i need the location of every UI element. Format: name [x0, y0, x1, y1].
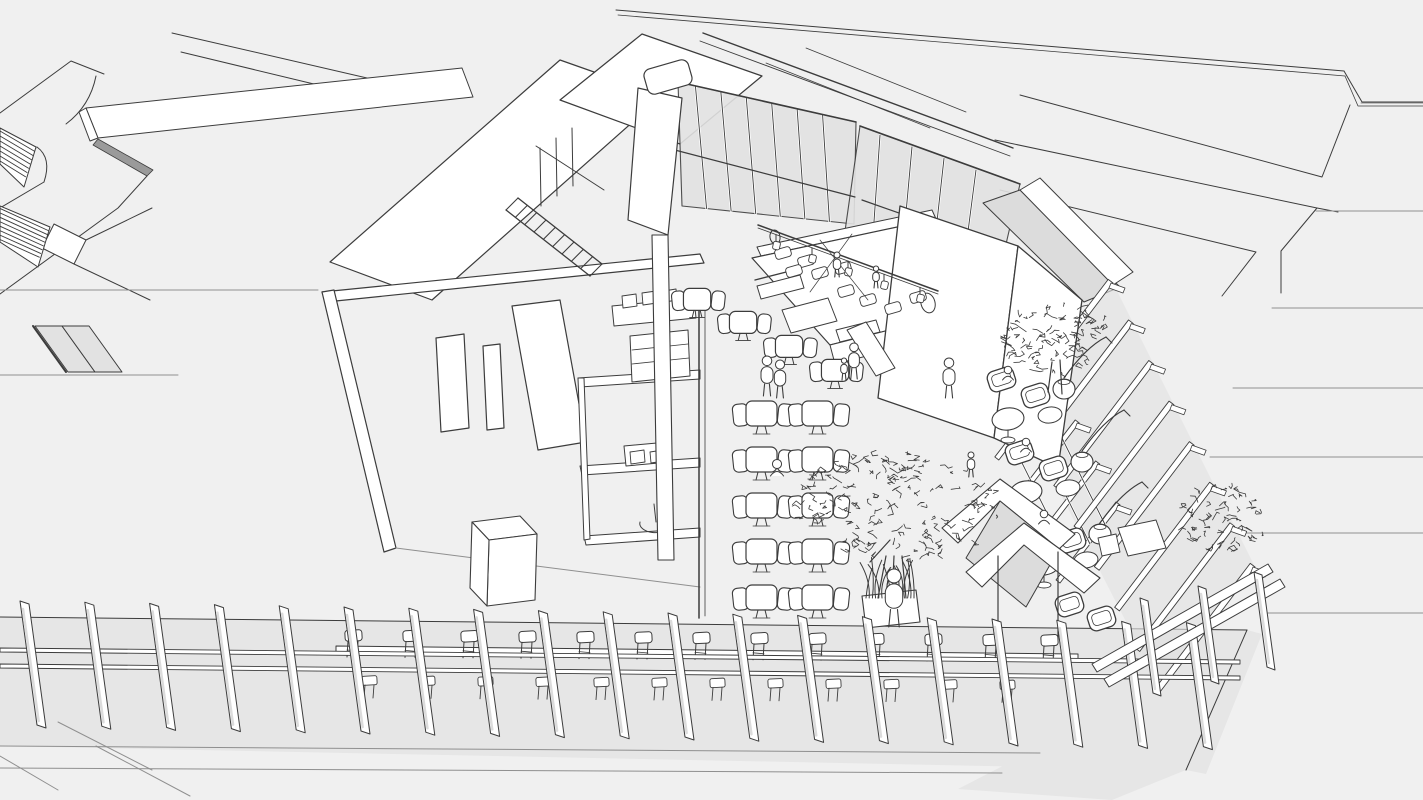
dining-table — [802, 539, 833, 564]
dining-table — [802, 585, 833, 610]
person-torso — [841, 364, 848, 373]
person-torso — [967, 459, 975, 470]
person-leg — [845, 373, 846, 380]
person-leg — [839, 270, 840, 278]
rendering-canvas — [0, 0, 1423, 800]
chair-back — [826, 679, 841, 689]
pendant-lamp-sphere — [1053, 379, 1075, 399]
person-torso — [849, 353, 860, 368]
chair-back — [768, 678, 783, 688]
freezer-front — [487, 534, 537, 606]
person-head — [968, 452, 974, 458]
person-torso — [873, 272, 880, 281]
stool-seat — [519, 631, 537, 643]
person-leg — [835, 270, 836, 278]
dining-table — [746, 493, 777, 518]
person-head — [841, 358, 846, 363]
dining-table — [683, 288, 710, 310]
dining-table — [802, 447, 833, 472]
stool-seat — [577, 631, 595, 643]
dining-table — [775, 335, 802, 357]
dining-chair — [757, 313, 772, 334]
seated-person-head — [1004, 366, 1012, 374]
person-leg — [877, 281, 878, 288]
stool-seat — [635, 632, 653, 644]
stool-seat — [461, 630, 479, 642]
chair-back — [594, 677, 609, 687]
spotlight-fixture — [916, 294, 925, 303]
dining-chair — [833, 541, 850, 564]
seated-person-head — [1040, 510, 1048, 518]
chair-back — [710, 678, 725, 688]
seated-person-head — [772, 459, 781, 468]
stool-seat — [1041, 634, 1059, 646]
monolith-front — [878, 206, 1018, 438]
person-torso — [761, 367, 773, 384]
dining-chair — [833, 495, 850, 518]
pendant-lamp-sphere — [1071, 452, 1093, 472]
dining-table — [746, 447, 777, 472]
person-head — [850, 343, 859, 352]
table-base — [1001, 437, 1015, 443]
person-head — [762, 356, 772, 366]
dining-table — [729, 311, 756, 333]
spotlight-fixture — [772, 241, 781, 250]
chair-back — [652, 678, 667, 688]
person-head — [944, 358, 954, 368]
dining-table — [746, 585, 777, 610]
wall-int-2 — [483, 344, 504, 430]
stool-seat — [693, 632, 711, 644]
stool-seat — [751, 632, 769, 644]
person-torso — [943, 369, 955, 386]
chair-back — [362, 676, 377, 686]
dining-chair — [711, 290, 726, 311]
dining-chair — [833, 587, 850, 610]
dining-table — [746, 539, 777, 564]
person-torso — [885, 584, 902, 608]
wall-int-1 — [436, 334, 469, 432]
seated-person-head — [1022, 438, 1030, 446]
person-torso — [833, 259, 841, 270]
person-leg — [969, 470, 970, 478]
architectural-rendering — [0, 0, 1423, 800]
dining-chair — [833, 449, 850, 472]
dining-chair — [803, 337, 818, 358]
person-leg — [874, 281, 875, 288]
person-leg — [842, 373, 843, 380]
person-leg — [973, 470, 974, 478]
person-head — [775, 360, 784, 369]
person-head — [834, 252, 840, 258]
stool-seat — [809, 633, 827, 645]
spotlight-fixture — [808, 254, 817, 263]
office-chair-1 — [630, 450, 645, 464]
person-head — [887, 569, 901, 583]
person-head — [873, 266, 878, 271]
chair-back — [884, 679, 899, 689]
corner-chair — [1098, 534, 1120, 556]
dining-chair — [833, 403, 850, 426]
person-torso — [774, 370, 785, 386]
espresso-1 — [622, 294, 637, 308]
spotlight-fixture — [880, 281, 889, 290]
dining-table — [746, 401, 777, 426]
dining-table — [802, 401, 833, 426]
